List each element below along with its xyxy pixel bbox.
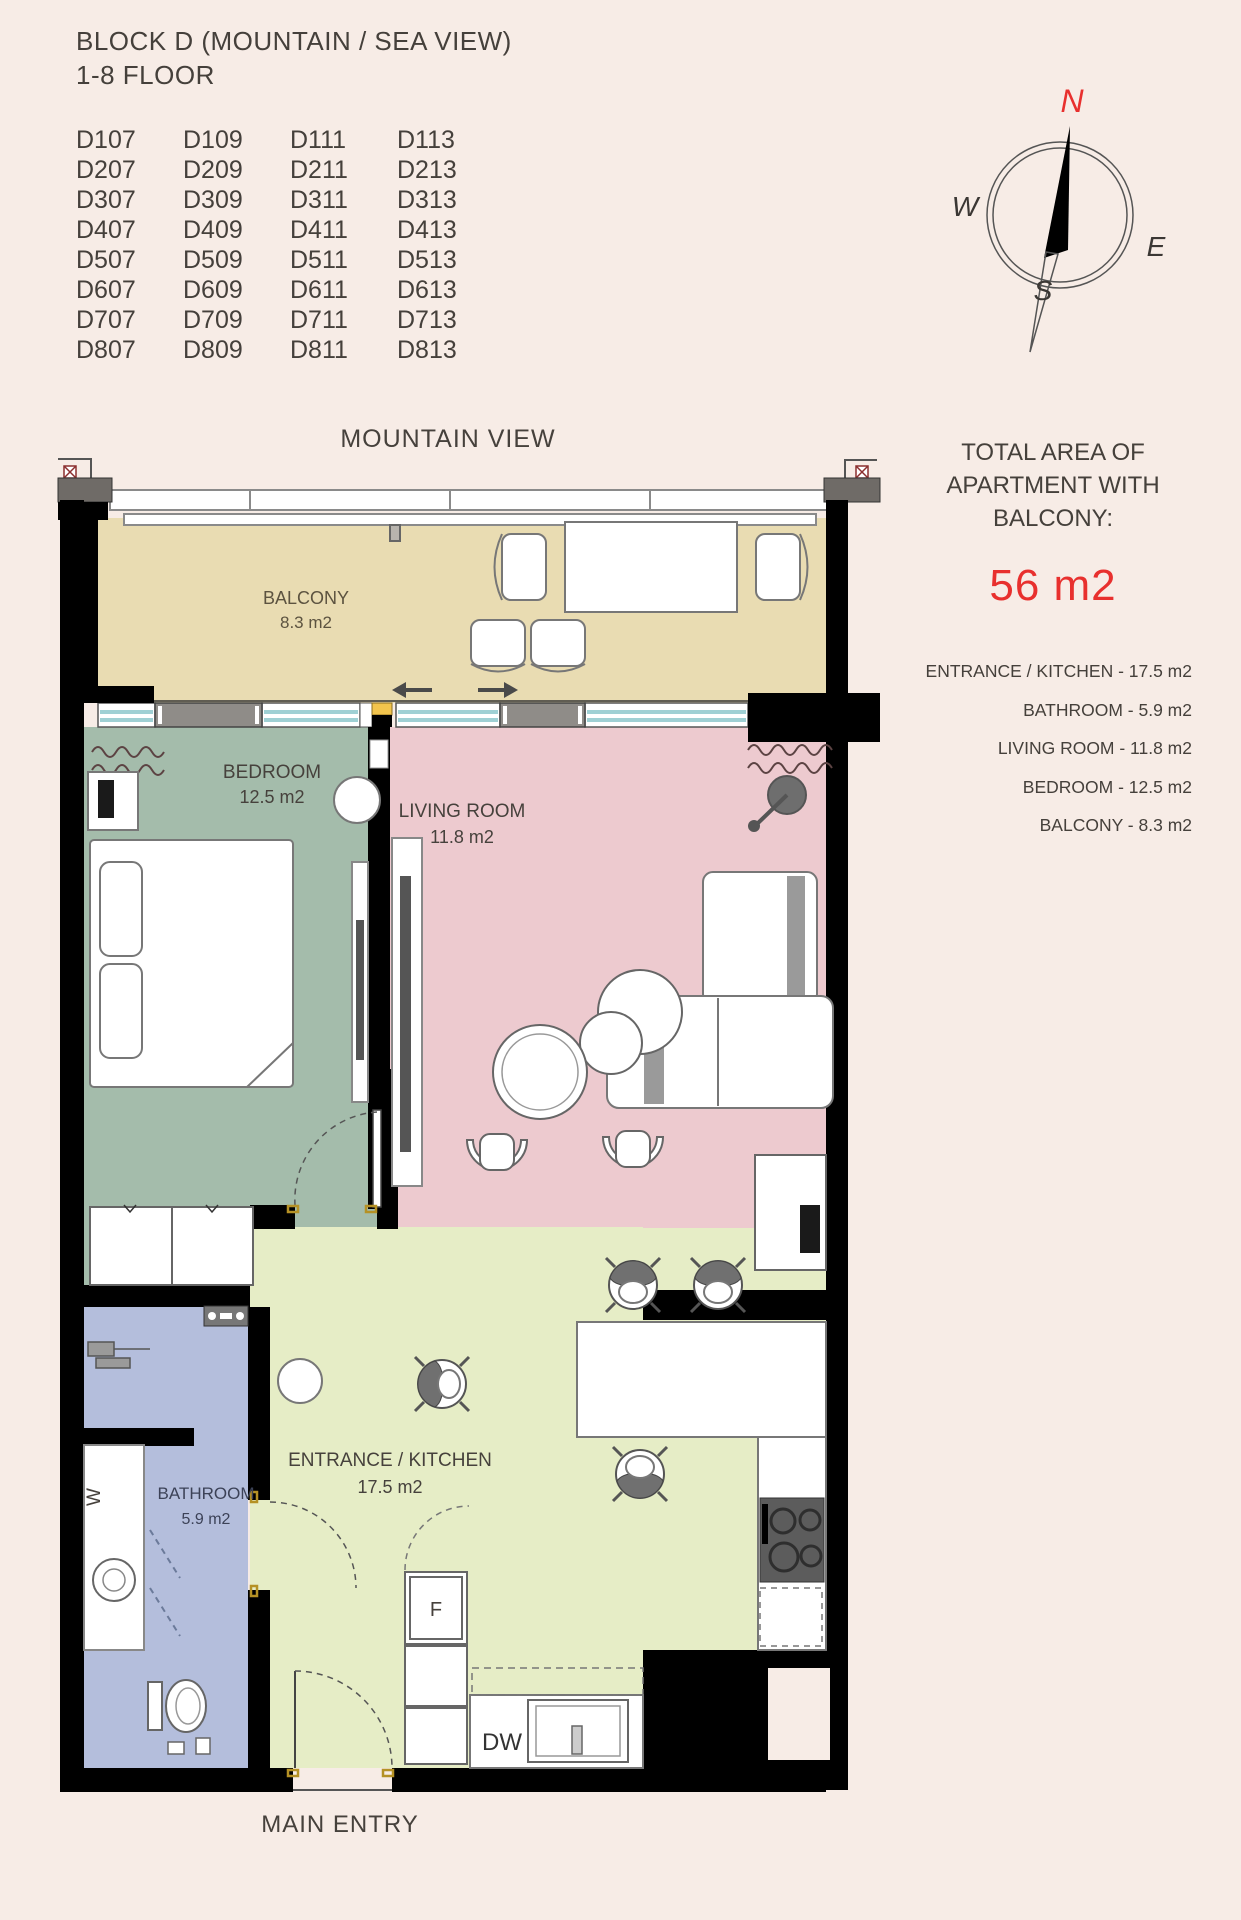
balcony-area-label: 8.3 m2 — [280, 613, 332, 632]
main-entry-label: MAIN ENTRY — [261, 1811, 419, 1838]
bar-stool — [606, 1258, 660, 1312]
wall-niche — [370, 740, 388, 768]
kitchen-area-label: 17.5 m2 — [357, 1477, 422, 1497]
balcony-table — [565, 522, 737, 612]
side-table — [334, 777, 380, 823]
slider-lock-marker — [372, 703, 392, 715]
compass-east-label: E — [1147, 231, 1166, 262]
fridge-label: F — [430, 1599, 442, 1621]
stove — [760, 1498, 824, 1582]
lamp — [98, 780, 114, 818]
bar-stool — [691, 1258, 745, 1312]
bathroom-label: BATHROOM — [158, 1484, 255, 1503]
sliding-window-band — [98, 701, 826, 727]
bedroom-area-label: 12.5 m2 — [239, 787, 304, 807]
hall-table — [278, 1359, 322, 1403]
compass-rose-icon: N W E S — [952, 83, 1166, 352]
washbasin — [93, 1559, 135, 1601]
bedroom-door-leaf — [373, 1110, 381, 1207]
pillow — [100, 964, 142, 1058]
exterior-niche — [768, 1668, 830, 1760]
floor-plan: MOUNTAIN VIEW BALCONY 8.3 m2 BEDROOM 12.… — [0, 0, 1241, 1920]
living-room-area-label: 11.8 m2 — [430, 827, 494, 847]
vanity-counter — [84, 1445, 144, 1650]
compass-north-label: N — [1060, 83, 1084, 119]
balcony-label: BALCONY — [263, 588, 349, 608]
balcony-chair — [471, 620, 525, 672]
washer-label: W — [84, 1488, 105, 1506]
kitchen-label: ENTRANCE / KITCHEN — [288, 1450, 492, 1471]
bar-stool — [415, 1357, 469, 1411]
bar-stool — [613, 1447, 667, 1501]
dishwasher-label: DW — [482, 1729, 522, 1756]
wardrobe — [90, 1205, 253, 1285]
balcony-chair — [495, 534, 547, 600]
compass-west-label: W — [952, 191, 981, 222]
coffee-table — [580, 1012, 642, 1074]
kitchen-island — [577, 1322, 826, 1437]
toilet — [148, 1680, 206, 1732]
balcony-chair — [531, 620, 585, 672]
living-room-label: LIVING ROOM — [399, 801, 526, 822]
bathroom-area-label: 5.9 m2 — [182, 1511, 231, 1528]
compass-needle-north — [1044, 126, 1070, 258]
dining-table — [493, 1025, 587, 1119]
mountain-view-label: MOUNTAIN VIEW — [340, 425, 555, 453]
pillow — [100, 862, 142, 956]
compass-south-label: S — [1034, 275, 1053, 306]
balcony-chair — [756, 534, 808, 600]
bedroom-label: BEDROOM — [223, 762, 321, 783]
